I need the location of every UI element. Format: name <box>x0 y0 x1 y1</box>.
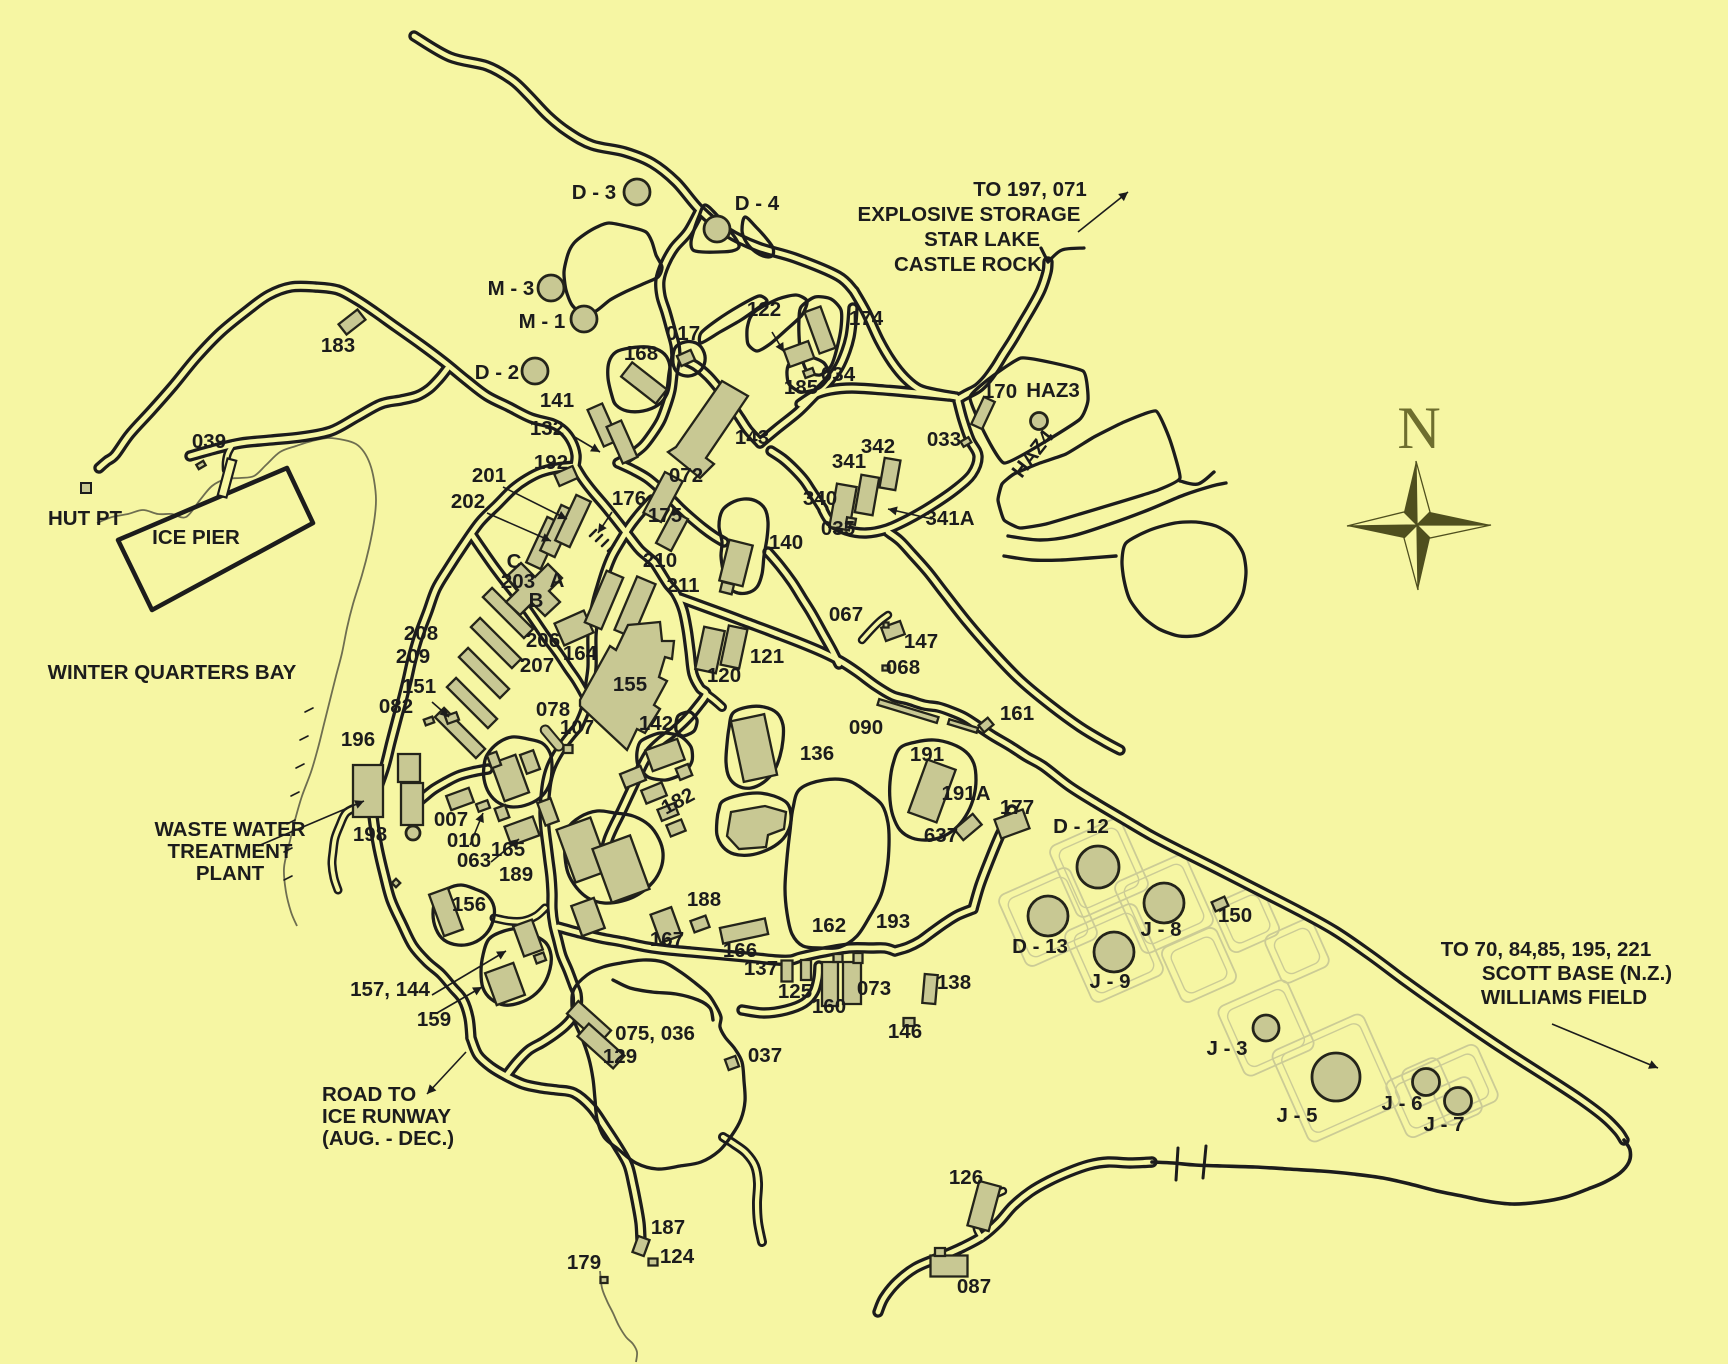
svg-text:150: 150 <box>1218 904 1252 927</box>
svg-text:141: 141 <box>540 389 574 412</box>
svg-text:WASTE WATER: WASTE WATER <box>154 818 305 841</box>
svg-text:196: 196 <box>341 728 375 751</box>
svg-text:067: 067 <box>829 603 863 626</box>
svg-text:HUT PT: HUT PT <box>48 507 123 530</box>
svg-text:WILLIAMS FIELD: WILLIAMS FIELD <box>1481 986 1647 1009</box>
svg-text:ICE PIER: ICE PIER <box>152 526 240 549</box>
svg-text:M - 3: M - 3 <box>488 277 535 300</box>
svg-text:068: 068 <box>886 656 920 679</box>
svg-text:122: 122 <box>747 298 781 321</box>
svg-text:D - 3: D - 3 <box>572 181 616 204</box>
svg-text:165: 165 <box>491 838 525 861</box>
svg-text:147: 147 <box>904 630 938 653</box>
svg-text:340: 340 <box>803 487 837 510</box>
svg-text:SCOTT BASE (N.Z.): SCOTT BASE (N.Z.) <box>1482 962 1672 985</box>
svg-text:164: 164 <box>563 642 598 665</box>
svg-text:CASTLE ROCK: CASTLE ROCK <box>894 253 1042 276</box>
svg-text:208: 208 <box>404 622 438 645</box>
svg-text:D - 12: D - 12 <box>1053 815 1109 838</box>
svg-text:177: 177 <box>1000 796 1034 819</box>
svg-text:159: 159 <box>417 1008 451 1031</box>
svg-text:209: 209 <box>396 645 430 668</box>
svg-text:155: 155 <box>613 673 647 696</box>
svg-text:120: 120 <box>707 664 741 687</box>
svg-text:156: 156 <box>452 893 486 916</box>
svg-text:(AUG. - DEC.): (AUG. - DEC.) <box>322 1127 454 1150</box>
svg-text:167: 167 <box>650 928 684 951</box>
svg-text:191A: 191A <box>941 782 990 805</box>
svg-text:136: 136 <box>800 742 834 765</box>
svg-text:HAZ3: HAZ3 <box>1026 379 1080 402</box>
svg-text:162: 162 <box>812 914 846 937</box>
svg-text:193: 193 <box>876 910 910 933</box>
svg-text:087: 087 <box>957 1275 991 1298</box>
svg-text:TO 70, 84,85, 195, 221: TO 70, 84,85, 195, 221 <box>1441 938 1651 961</box>
svg-text:J - 8: J - 8 <box>1140 918 1181 941</box>
svg-text:202: 202 <box>451 490 485 513</box>
svg-text:174: 174 <box>849 307 884 330</box>
svg-text:191: 191 <box>910 743 944 766</box>
svg-text:072: 072 <box>669 464 703 487</box>
svg-text:126: 126 <box>949 1166 983 1189</box>
svg-text:132: 132 <box>530 417 564 440</box>
svg-text:A: A <box>550 569 565 592</box>
svg-text:341: 341 <box>832 450 866 473</box>
svg-text:007: 007 <box>434 808 468 831</box>
svg-text:187: 187 <box>651 1216 685 1239</box>
svg-text:198: 198 <box>353 823 387 846</box>
svg-text:N: N <box>1397 395 1440 461</box>
svg-text:039: 039 <box>192 430 226 453</box>
svg-text:170: 170 <box>983 380 1017 403</box>
svg-text:176: 176 <box>612 487 646 510</box>
svg-text:206: 206 <box>526 629 560 652</box>
svg-text:J - 5: J - 5 <box>1276 1104 1317 1127</box>
svg-text:175: 175 <box>648 504 682 527</box>
svg-text:192: 192 <box>534 451 568 474</box>
svg-text:082: 082 <box>379 695 413 718</box>
svg-text:107: 107 <box>560 716 594 739</box>
svg-text:188: 188 <box>687 888 721 911</box>
svg-text:TO 197, 071: TO 197, 071 <box>973 178 1087 201</box>
svg-text:J - 9: J - 9 <box>1089 970 1130 993</box>
svg-text:017: 017 <box>666 322 700 345</box>
svg-text:ROAD TO: ROAD TO <box>322 1083 416 1106</box>
svg-text:125: 125 <box>778 980 812 1003</box>
svg-text:035: 035 <box>821 517 855 540</box>
svg-text:138: 138 <box>937 971 971 994</box>
svg-text:189: 189 <box>499 863 533 886</box>
svg-text:146: 146 <box>888 1020 922 1043</box>
svg-text:J - 6: J - 6 <box>1381 1092 1422 1115</box>
svg-text:034: 034 <box>821 363 856 386</box>
svg-text:142: 142 <box>639 712 673 735</box>
svg-text:207: 207 <box>520 654 554 677</box>
svg-text:183: 183 <box>321 334 355 357</box>
svg-text:PLANT: PLANT <box>196 862 265 885</box>
svg-text:STAR LAKE: STAR LAKE <box>924 228 1040 251</box>
svg-text:185: 185 <box>784 376 818 399</box>
svg-text:M - 1: M - 1 <box>519 310 566 333</box>
svg-text:TREATMENT: TREATMENT <box>168 840 293 863</box>
svg-text:090: 090 <box>849 716 883 739</box>
svg-text:033: 033 <box>927 428 961 451</box>
svg-text:160: 160 <box>812 995 846 1018</box>
svg-text:ICE RUNWAY: ICE RUNWAY <box>322 1105 451 1128</box>
svg-text:137: 137 <box>744 957 778 980</box>
svg-text:WINTER QUARTERS BAY: WINTER QUARTERS BAY <box>48 661 297 684</box>
svg-text:D - 13: D - 13 <box>1012 935 1068 958</box>
svg-text:J - 3: J - 3 <box>1206 1037 1247 1060</box>
svg-text:140: 140 <box>769 531 803 554</box>
svg-text:121: 121 <box>750 645 784 668</box>
svg-text:037: 037 <box>748 1044 782 1067</box>
svg-text:341A: 341A <box>925 507 974 530</box>
svg-text:143: 143 <box>735 426 769 449</box>
svg-text:161: 161 <box>1000 702 1034 725</box>
svg-text:D - 2: D - 2 <box>475 361 519 384</box>
svg-text:179: 179 <box>567 1251 601 1274</box>
svg-text:B: B <box>529 589 544 612</box>
svg-text:D - 4: D - 4 <box>735 192 780 215</box>
svg-text:210: 210 <box>643 549 677 572</box>
svg-text:063: 063 <box>457 849 491 872</box>
svg-text:J - 7: J - 7 <box>1423 1113 1464 1136</box>
svg-text:124: 124 <box>660 1245 695 1268</box>
svg-text:075, 036: 075, 036 <box>615 1022 695 1045</box>
svg-text:211: 211 <box>666 574 699 597</box>
svg-text:EXPLOSIVE STORAGE: EXPLOSIVE STORAGE <box>858 203 1081 226</box>
svg-text:129: 129 <box>603 1045 637 1068</box>
svg-text:168: 168 <box>624 342 658 365</box>
svg-text:157, 144: 157, 144 <box>350 978 430 1001</box>
svg-text:073: 073 <box>857 977 891 1000</box>
svg-text:637: 637 <box>924 824 958 847</box>
svg-text:201: 201 <box>472 464 506 487</box>
